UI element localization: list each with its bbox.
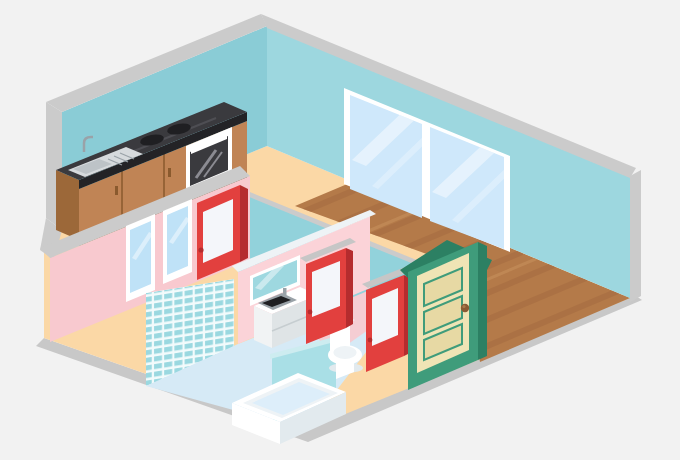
entry-door-frame-side	[478, 242, 487, 360]
door-knob	[308, 310, 313, 315]
door-knob	[368, 338, 373, 343]
door-side	[240, 185, 248, 262]
bedroom-window-2	[163, 199, 192, 284]
back-right-wall-end	[630, 170, 641, 302]
entry-door-knob	[461, 304, 469, 312]
cabinet-handle	[115, 186, 118, 195]
cabinet-side	[56, 170, 79, 240]
toilet-seat	[334, 346, 357, 359]
bedroom-window-1	[126, 214, 155, 302]
entry-door-knob-highlight	[462, 305, 465, 308]
vanity-faucet-icon	[283, 288, 287, 295]
door-knob	[198, 247, 203, 252]
apartment-illustration	[0, 0, 680, 460]
cabinet-handle	[168, 168, 171, 177]
illustration-stage	[0, 0, 680, 460]
door-side	[346, 248, 353, 328]
